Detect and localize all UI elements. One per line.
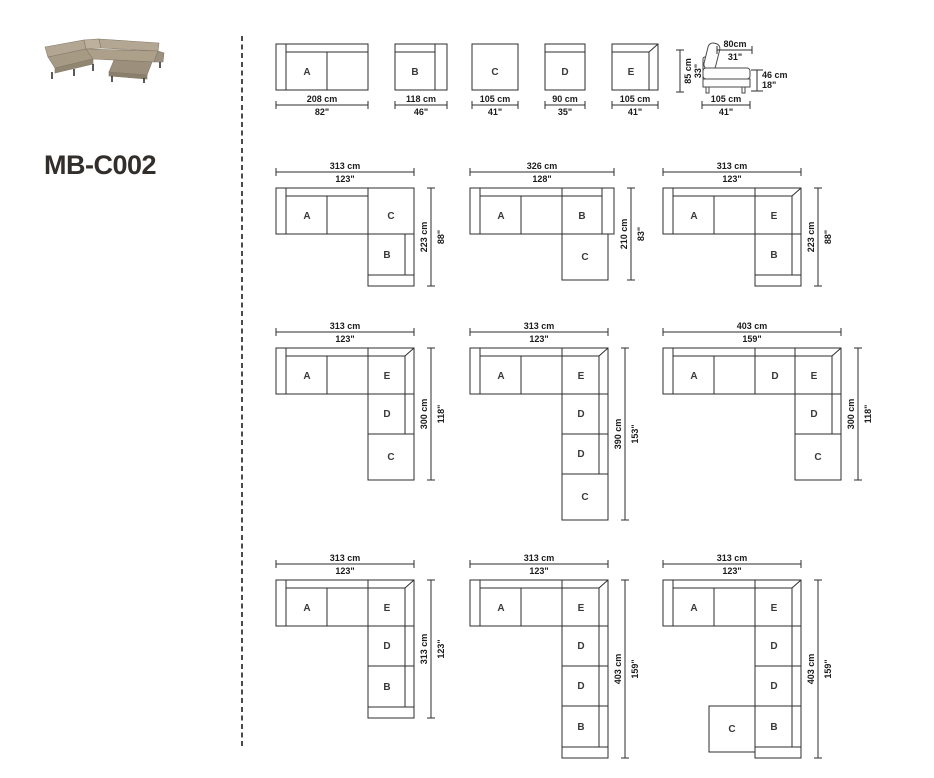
catalog-page: MB-C002 A208 cm82"B118 cm46"C105 cm41"D9… <box>0 0 934 778</box>
module-label-A: A <box>497 211 504 222</box>
dim-label-inch: 82" <box>315 107 329 117</box>
dim-label-inch: 83" <box>636 227 646 241</box>
module-E-outline <box>612 44 658 90</box>
dim-label-cm: 300 cm <box>419 399 429 430</box>
dim-label-cm: 403 cm <box>806 654 816 685</box>
dim-label-cm: 105 cm <box>480 94 511 104</box>
module-label-A: A <box>303 67 310 78</box>
dim-label-inch: 118" <box>863 405 873 424</box>
dim-label-cm: 90 cm <box>552 94 578 104</box>
module-A-outline <box>663 580 755 626</box>
module-B-outline <box>755 234 801 286</box>
dim-label-inch: 18" <box>762 80 776 90</box>
dim-label-cm: 326 cm <box>527 161 558 171</box>
module-label-B: B <box>578 211 585 222</box>
dim-label-inch: 128" <box>532 174 551 184</box>
dim-label-inch: 41" <box>628 107 642 117</box>
module-label-D: D <box>810 409 817 420</box>
module-label-A: A <box>303 371 310 382</box>
module-E-outline <box>562 348 608 394</box>
dim-label-cm: 46 cm <box>762 70 788 80</box>
module-label-E: E <box>628 67 635 78</box>
dim-label-inch: 35" <box>558 107 572 117</box>
module-A-outline <box>663 348 755 394</box>
module-label-E: E <box>384 371 391 382</box>
module-label-E: E <box>384 603 391 614</box>
module-label-E: E <box>771 603 778 614</box>
module-A-outline <box>470 580 562 626</box>
module-B-outline <box>755 706 801 758</box>
module-B-outline <box>368 666 414 718</box>
dim-label-inch: 159" <box>742 334 761 344</box>
dim-label-cm: 210 cm <box>619 219 629 250</box>
module-label-C: C <box>387 211 394 222</box>
dim-label-inch: 123" <box>529 334 548 344</box>
module-label-C: C <box>491 67 498 78</box>
module-label-A: A <box>690 603 697 614</box>
sideview-base <box>703 79 750 87</box>
dim-label-inch: 123" <box>335 334 354 344</box>
dim-label-cm: 313 cm <box>419 634 429 665</box>
dim-label-inch: 123" <box>722 174 741 184</box>
module-B-outline <box>562 706 608 758</box>
module-label-E: E <box>578 371 585 382</box>
module-D-outline <box>368 626 414 666</box>
dim-label-inch: 123" <box>335 566 354 576</box>
sideview-back-cushion <box>703 42 721 71</box>
module-label-D: D <box>561 67 568 78</box>
module-label-A: A <box>690 371 697 382</box>
dim-label-inch: 123" <box>436 639 446 658</box>
sideview-leg <box>742 87 745 93</box>
module-E-outline <box>368 348 414 394</box>
module-D-outline <box>562 666 608 706</box>
dim-label-cm: 313 cm <box>330 321 361 331</box>
dim-label-cm: 300 cm <box>846 399 856 430</box>
module-A-outline <box>276 188 368 234</box>
dim-label-cm: 313 cm <box>330 553 361 563</box>
dim-label-inch: 153" <box>630 424 640 443</box>
module-label-D: D <box>577 409 584 420</box>
module-D-outline <box>562 394 608 434</box>
module-A-outline <box>663 188 755 234</box>
dim-label-inch: 159" <box>630 659 640 678</box>
module-label-E: E <box>771 211 778 222</box>
module-A-outline <box>276 44 368 90</box>
module-label-B: B <box>770 722 777 733</box>
module-label-D: D <box>770 641 777 652</box>
module-label-A: A <box>497 603 504 614</box>
module-label-A: A <box>303 211 310 222</box>
dim-label-cm: 403 cm <box>737 321 768 331</box>
dim-label-cm: 223 cm <box>419 222 429 253</box>
module-A-outline <box>470 188 562 234</box>
dim-label-inch: 123" <box>722 566 741 576</box>
module-B-outline <box>562 188 614 234</box>
module-label-C: C <box>581 252 588 263</box>
module-E-outline <box>755 580 801 626</box>
dim-label-cm: 313 cm <box>330 161 361 171</box>
dim-label-inch: 88" <box>823 230 833 244</box>
module-D-outline <box>562 434 608 474</box>
dim-label-cm: 85 cm <box>683 58 693 84</box>
module-A-outline <box>276 348 368 394</box>
module-label-D: D <box>771 371 778 382</box>
module-label-D: D <box>383 409 390 420</box>
module-E-outline <box>562 580 608 626</box>
dim-label-cm: 313 cm <box>717 553 748 563</box>
module-label-B: B <box>383 250 390 261</box>
module-label-A: A <box>497 371 504 382</box>
dim-label-inch: 159" <box>823 659 833 678</box>
module-label-D: D <box>383 641 390 652</box>
dim-label-cm: 105 cm <box>711 94 742 104</box>
technical-diagram: A208 cm82"B118 cm46"C105 cm41"D90 cm35"E… <box>0 0 934 778</box>
dim-label-cm: 118 cm <box>406 94 436 104</box>
dim-label-inch: 31" <box>728 52 742 62</box>
dim-label-cm: 313 cm <box>524 553 555 563</box>
module-label-D: D <box>577 641 584 652</box>
module-B-outline <box>395 44 447 90</box>
module-label-B: B <box>411 67 418 78</box>
module-label-A: A <box>690 211 697 222</box>
module-label-C: C <box>728 724 735 735</box>
module-E-outline <box>795 348 841 394</box>
module-D-outline <box>755 666 801 706</box>
module-label-C: C <box>387 452 394 463</box>
module-label-B: B <box>770 250 777 261</box>
module-label-B: B <box>577 722 584 733</box>
module-D-outline <box>755 626 801 666</box>
module-A-outline <box>470 348 562 394</box>
sideview-seat-cushion <box>703 68 750 79</box>
module-A-outline <box>276 580 368 626</box>
dim-label-inch: 41" <box>488 107 502 117</box>
module-label-D: D <box>577 681 584 692</box>
dim-label-cm: 313 cm <box>717 161 748 171</box>
dim-label-inch: 41" <box>719 107 733 117</box>
module-E-outline <box>368 580 414 626</box>
module-label-E: E <box>811 371 818 382</box>
dim-label-cm: 390 cm <box>613 419 623 450</box>
module-label-C: C <box>814 452 821 463</box>
module-label-B: B <box>383 682 390 693</box>
dim-label-inch: 88" <box>436 230 446 244</box>
dim-label-cm: 80cm <box>723 39 746 49</box>
module-B-outline <box>368 234 414 286</box>
dim-label-cm: 313 cm <box>524 321 555 331</box>
module-label-E: E <box>578 603 585 614</box>
module-D-outline <box>562 626 608 666</box>
module-label-D: D <box>577 449 584 460</box>
dim-label-cm: 105 cm <box>620 94 651 104</box>
module-D-outline <box>368 394 414 434</box>
dim-label-cm: 208 cm <box>307 94 338 104</box>
dim-label-cm: 223 cm <box>806 222 816 253</box>
dim-label-inch: 33" <box>693 64 703 78</box>
dim-label-inch: 46" <box>414 107 428 117</box>
dim-label-inch: 123" <box>529 566 548 576</box>
module-label-C: C <box>581 492 588 503</box>
dim-label-inch: 118" <box>436 405 446 424</box>
module-E-outline <box>755 188 801 234</box>
sideview-leg <box>706 87 709 93</box>
module-label-D: D <box>770 681 777 692</box>
dim-label-inch: 123" <box>335 174 354 184</box>
module-D-outline <box>795 394 841 434</box>
module-label-A: A <box>303 603 310 614</box>
dim-label-cm: 403 cm <box>613 654 623 685</box>
